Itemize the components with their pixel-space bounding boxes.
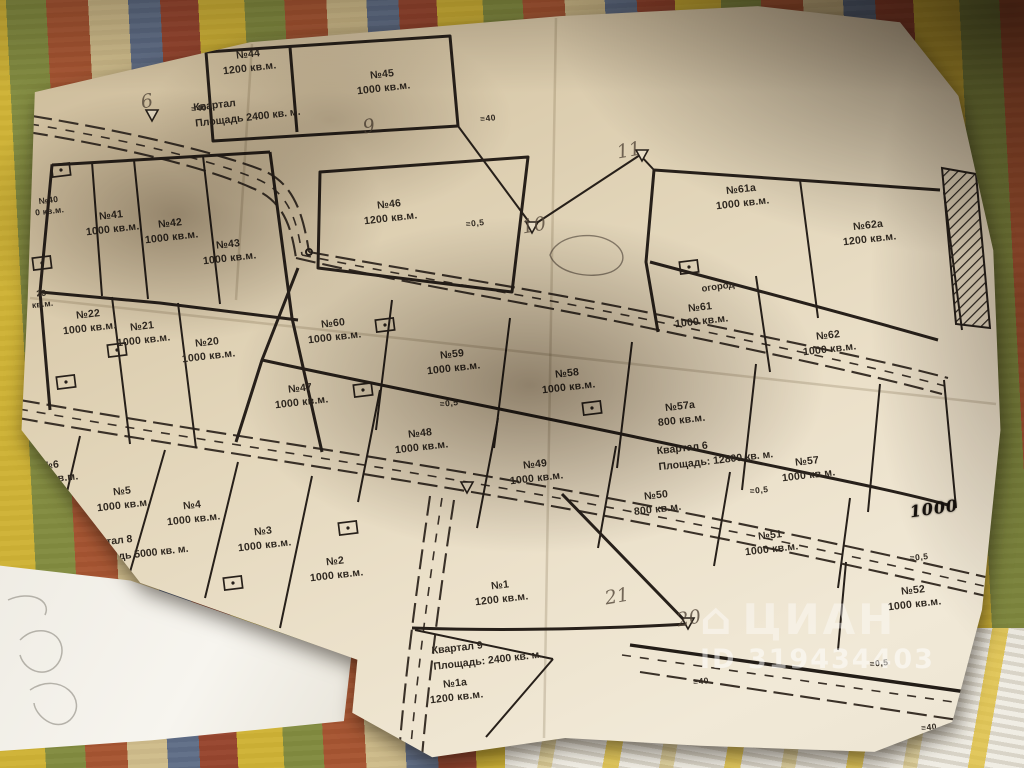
vertex-number: 21 xyxy=(603,586,630,609)
benchmark-mark: ≡0,5 xyxy=(439,397,459,409)
vertex-number: 11 xyxy=(615,140,642,163)
plot-label: №50800 кв.м. xyxy=(632,487,682,519)
plot-label: 23кв.м. xyxy=(30,287,54,311)
map-paper-wrap: №441200 кв.м. №451000 кв.м. №461200 кв.м… xyxy=(0,0,1024,768)
benchmark-mark: ≡40 xyxy=(480,112,497,124)
vertex-number: 24 xyxy=(319,655,346,678)
map-paper: №441200 кв.м. №451000 кв.м. №461200 кв.м… xyxy=(0,0,1024,768)
vertex-number: 10 xyxy=(520,215,547,238)
plot-label: №400 кв.м. xyxy=(33,193,64,218)
benchmark-mark: ≡0,5 xyxy=(869,657,889,669)
benchmark-mark: ≡40 xyxy=(191,102,208,114)
plot-label: №57а800 кв.м. xyxy=(656,398,706,430)
vertex-number: 20 xyxy=(675,608,702,631)
benchmark-mark: ≡0,5 xyxy=(909,551,929,563)
benchmark-mark: ≡40 xyxy=(148,640,165,652)
benchmark-mark: ≡40 xyxy=(693,675,710,687)
benchmark-mark: ≡0,5 xyxy=(749,484,769,496)
benchmark-mark: ≡0,5 xyxy=(465,217,485,229)
benchmark-mark: ≡40 xyxy=(921,721,938,733)
photo-of-cadastral-plan: №441200 кв.м. №451000 кв.м. №461200 кв.м… xyxy=(0,0,1024,768)
